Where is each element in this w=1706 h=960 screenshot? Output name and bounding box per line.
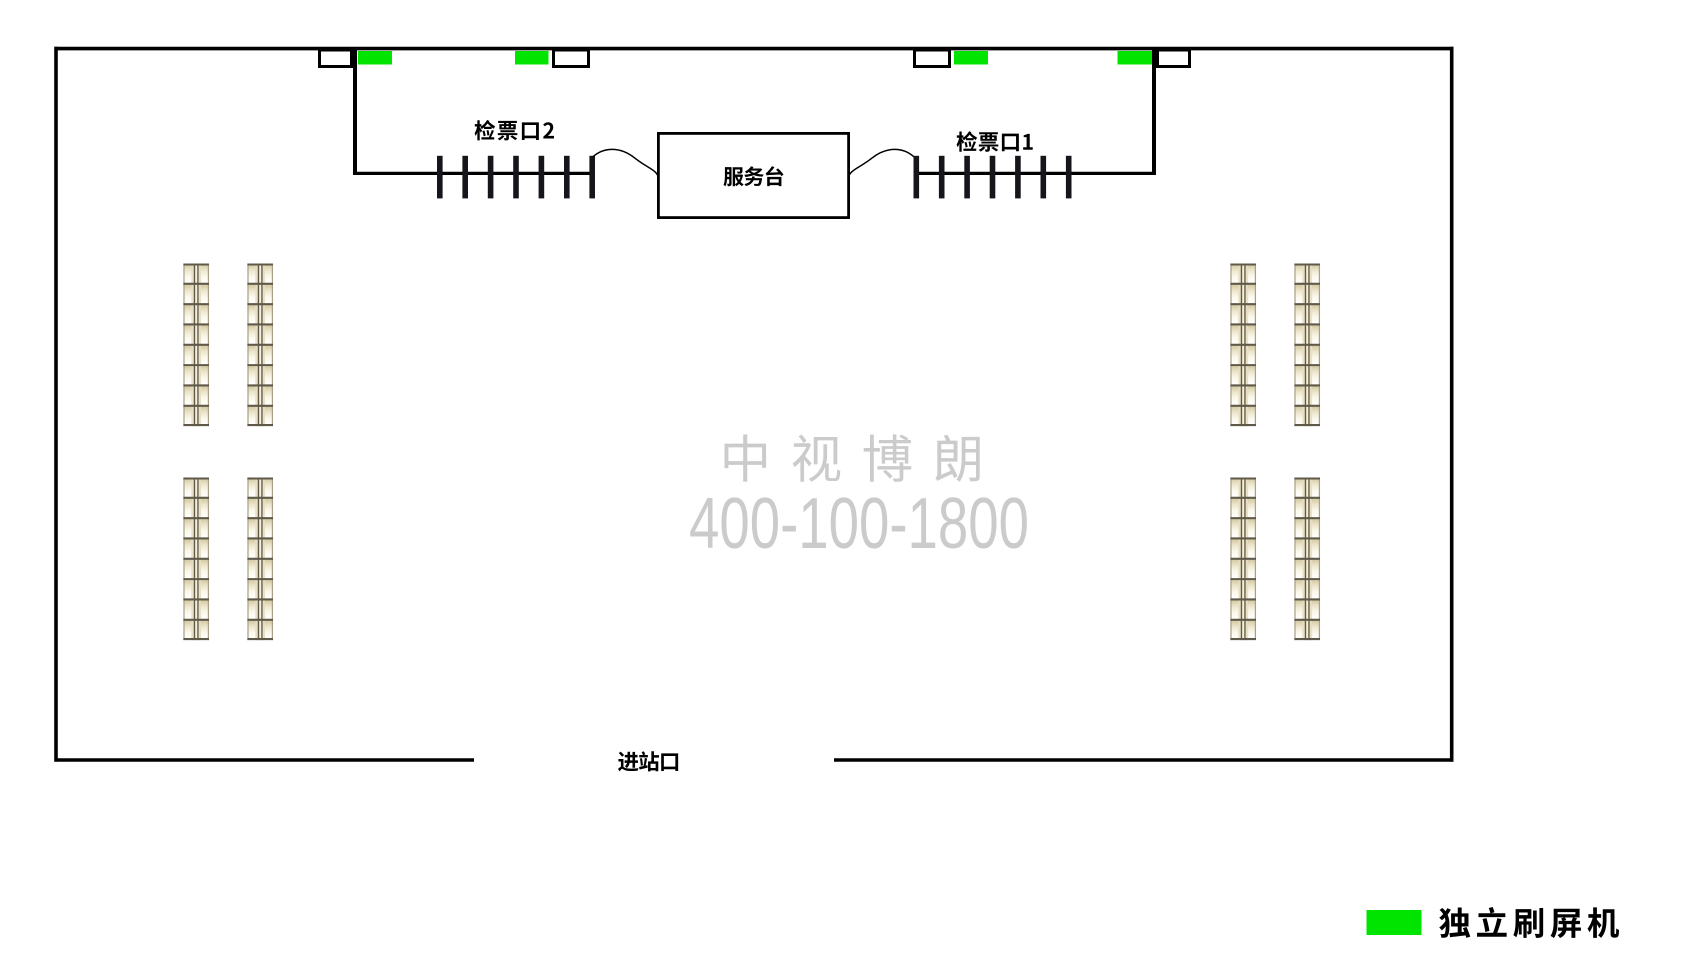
svg-text:400-100-1800: 400-100-1800 bbox=[689, 484, 1029, 564]
